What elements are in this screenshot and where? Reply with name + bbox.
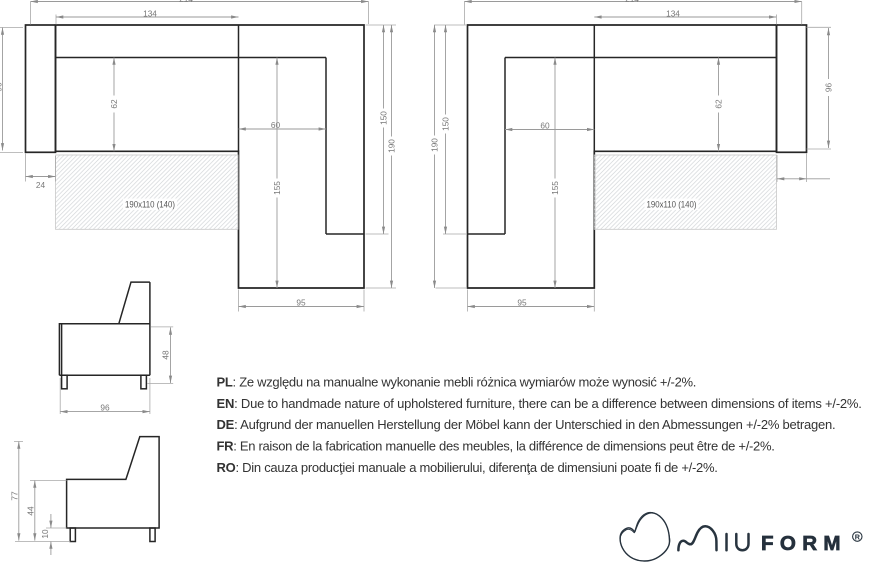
svg-text:62: 62 <box>109 99 119 109</box>
svg-text:214: 214 <box>179 0 193 4</box>
svg-text:190: 190 <box>430 138 440 152</box>
svg-text:214: 214 <box>625 0 639 4</box>
svg-text:150: 150 <box>379 111 389 125</box>
svg-text:96: 96 <box>824 83 834 93</box>
svg-text:FR: En raison de la fabricatio: FR: En raison de la fabrication manuelle… <box>217 439 775 454</box>
svg-text:EN: Due to handmade nature of: EN: Due to handmade nature of upholstere… <box>217 396 862 411</box>
svg-text:134: 134 <box>666 9 680 19</box>
svg-text:190x110 (140): 190x110 (140) <box>125 200 175 210</box>
svg-text:R: R <box>855 532 861 541</box>
svg-text:48: 48 <box>161 350 171 360</box>
svg-text:44: 44 <box>25 506 35 516</box>
svg-text:FORM: FORM <box>761 532 847 555</box>
svg-text:DE: Aufgrund der manuellen Her: DE: Aufgrund der manuellen Herstellung d… <box>217 417 836 432</box>
svg-text:77: 77 <box>10 491 20 501</box>
svg-text:60: 60 <box>271 120 281 130</box>
svg-text:190: 190 <box>387 139 397 153</box>
svg-text:150: 150 <box>441 117 451 131</box>
svg-text:PL: Ze względu na manualne wyk: PL: Ze względu na manualne wykonanie meb… <box>217 375 697 390</box>
svg-text:96: 96 <box>0 82 4 92</box>
svg-text:95: 95 <box>517 297 527 307</box>
svg-text:62: 62 <box>714 99 724 109</box>
svg-text:134: 134 <box>143 9 157 19</box>
svg-text:60: 60 <box>540 121 550 131</box>
svg-text:10: 10 <box>40 529 50 539</box>
svg-text:RO: Din cauza producţiei manua: RO: Din cauza producţiei manuale a mobil… <box>217 460 718 475</box>
svg-text:190x110 (140): 190x110 (140) <box>647 200 697 210</box>
svg-text:96: 96 <box>100 402 110 412</box>
svg-text:155: 155 <box>550 181 560 195</box>
svg-text:155: 155 <box>272 181 282 195</box>
svg-text:95: 95 <box>296 297 306 307</box>
svg-text:24: 24 <box>36 180 46 190</box>
